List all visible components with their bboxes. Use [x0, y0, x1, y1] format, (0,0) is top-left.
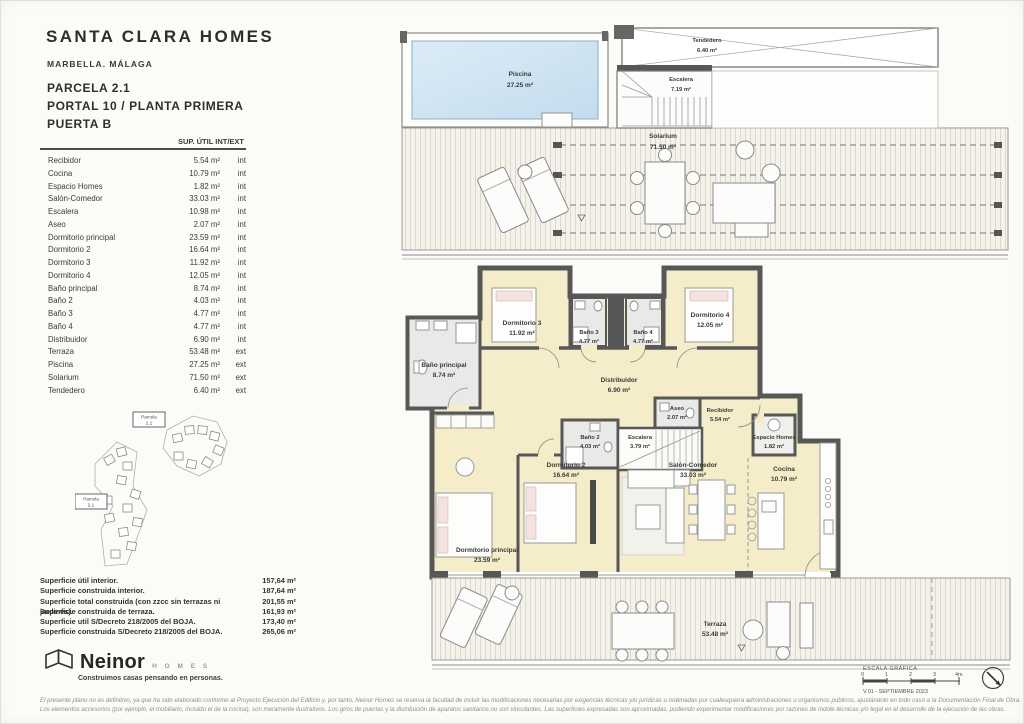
- roof-stair: [617, 65, 938, 128]
- summary-row: Superficie util S/Decreto 218/2005 del B…: [40, 617, 296, 627]
- svg-text:1: 1: [885, 672, 888, 678]
- svg-text:2: 2: [909, 672, 912, 678]
- room-type: int: [220, 155, 246, 168]
- svg-text:6.40 m²: 6.40 m²: [697, 47, 717, 54]
- svg-text:2.1: 2.1: [146, 421, 153, 426]
- svg-text:3.79 m²: 3.79 m²: [630, 443, 650, 450]
- room-label-piscina: Piscina: [509, 71, 532, 78]
- terraza-dining-set: [612, 601, 674, 661]
- svg-text:6.90 m²: 6.90 m²: [608, 387, 631, 394]
- room-name: Recibidor: [48, 155, 172, 168]
- site-label-left: Parcela 2.1: [75, 494, 107, 509]
- areas-table-header: SUP. ÚTIL INT/EXT: [40, 137, 244, 146]
- summary-row: Superficie útil interior.157,64 m²: [40, 576, 296, 586]
- area-row: Baño 24.03 m²int: [48, 295, 246, 308]
- room-label-solarium: Solarium: [649, 133, 677, 140]
- room-label-dormitorio3: Dormitorio 3: [503, 320, 542, 327]
- summary-row: Superficie construida de terraza.161,93 …: [40, 607, 296, 617]
- area-row: Recibidor5.54 m²int: [48, 155, 246, 168]
- tendedero-area: [614, 25, 938, 67]
- area-row: Solarium71.50 m²ext: [48, 372, 246, 385]
- room-label-espacio-homes: Espacio Homes: [752, 435, 795, 441]
- shaft-block: [614, 25, 634, 39]
- svg-text:2.1: 2.1: [88, 503, 95, 508]
- room-area: 5.54 m²: [172, 155, 220, 168]
- floor-plan-sheet: SANTA CLARA HOMES MARBELLA. MÁLAGA PARCE…: [0, 0, 1024, 724]
- svg-text:4.77 m²: 4.77 m²: [633, 338, 653, 345]
- area-row: Baño 44.77 m²int: [48, 321, 246, 334]
- room-label-dormitorio4: Dormitorio 4: [691, 312, 730, 319]
- svg-text:11.92 m²: 11.92 m²: [509, 330, 535, 337]
- plan-version: V.01 - SEPTIEMBRE 2023: [863, 689, 928, 695]
- area-row: Piscina27.25 m²ext: [48, 359, 246, 372]
- area-row: Baño principal8.74 m²int: [48, 283, 246, 296]
- main-plan: Dormitorio 3 11.92 m² Baño 3 4.77 m² Bañ…: [408, 268, 838, 582]
- area-row: Terraza53.48 m²ext: [48, 346, 246, 359]
- svg-text:4.77 m²: 4.77 m²: [579, 338, 599, 345]
- room-label-bano-principal: Baño principal: [421, 362, 466, 369]
- north-compass-icon: [983, 668, 1004, 689]
- area-row: Dormitorio 412.05 m²int: [48, 270, 246, 283]
- neinor-logo-icon: [44, 648, 74, 672]
- area-row: Salón-Comedor33.03 m²int: [48, 193, 246, 206]
- page-title: SANTA CLARA HOMES: [46, 27, 274, 47]
- svg-text:23.59 m²: 23.59 m²: [474, 557, 501, 564]
- svg-text:71.50 m²: 71.50 m²: [650, 144, 677, 151]
- room-label-aseo: Aseo: [670, 406, 685, 412]
- area-row: Dormitorio 311.92 m²int: [48, 257, 246, 270]
- disclaimer-line-2: Los elementos accesorios (por ejemplo, e…: [40, 706, 1022, 713]
- scale-title: ESCALA GRÁFICA: [863, 665, 917, 672]
- room-label-bano3: Baño 3: [579, 330, 599, 336]
- svg-text:53.48 m²: 53.48 m²: [702, 631, 729, 638]
- terraza: Terraza 53.48 m²: [432, 578, 1010, 669]
- side-table: [518, 165, 532, 179]
- svg-text:Parcela: Parcela: [141, 415, 157, 420]
- room-label-terraza: Terraza: [704, 621, 727, 628]
- pool-water: [412, 41, 598, 119]
- disclaimer-line-1: El presente plano no es definitivo, ya q…: [40, 697, 1022, 704]
- svg-text:10.79 m²: 10.79 m²: [771, 476, 798, 483]
- pool-steps: [542, 113, 572, 127]
- room-label-bano2: Baño 2: [580, 435, 599, 441]
- pool-area: [400, 31, 608, 127]
- areas-table: Recibidor5.54 m²int Cocina10.79 m²int Es…: [48, 155, 246, 397]
- area-row: Tendedero6.40 m²ext: [48, 385, 246, 398]
- site-label-top: Parcela 2.1: [133, 412, 165, 427]
- svg-text:0: 0: [861, 672, 864, 678]
- puerta-label: PUERTA B: [47, 117, 112, 131]
- room-label-bano4: Baño 4: [633, 330, 653, 336]
- room-label-dormitorio-principal: Dormitorio principal: [456, 547, 518, 554]
- summary-row: Superficie total construida (con zzcc si…: [40, 597, 296, 607]
- site-key-map: Parcela 2.1 Parcela 2.1: [75, 408, 240, 573]
- svg-text:5.54 m²: 5.54 m²: [710, 416, 730, 423]
- surface-summary: Superficie útil interior.157,64 m² Super…: [40, 576, 296, 638]
- summary-row: Superficie construida S/Decreto 218/2005…: [40, 627, 296, 637]
- scale-bar: ESCALA GRÁFICA 0 1 2 3 4m V.01 - SEPTIEM…: [861, 665, 963, 695]
- room-label-distribuidor: Distribuidor: [601, 377, 638, 384]
- floor-plan-drawing: Piscina 27.25 m² Tendedero 6.40 m² Escal…: [390, 15, 1020, 705]
- area-row: Distribuidor6.90 m²int: [48, 334, 246, 347]
- area-row: Cocina10.79 m²int: [48, 168, 246, 181]
- svg-text:16.64 m²: 16.64 m²: [553, 472, 580, 479]
- svg-text:2.07 m²: 2.07 m²: [667, 414, 687, 421]
- area-row: Baño 34.77 m²int: [48, 308, 246, 321]
- room-label-salon: Salón-Comedor: [669, 462, 718, 469]
- svg-text:4.03 m²: 4.03 m²: [580, 443, 600, 450]
- area-row: Dormitorio principal23.59 m²int: [48, 232, 246, 245]
- duct-shaft: [608, 296, 624, 348]
- room-label-escalera-main: Escalera: [628, 435, 653, 441]
- brand-sub: H O M E S: [152, 663, 210, 670]
- svg-text:27.25 m²: 27.25 m²: [507, 82, 534, 89]
- svg-text:8.74 m²: 8.74 m²: [433, 372, 456, 379]
- room-label-tendedero: Tendedero: [692, 38, 722, 44]
- summary-row: Superficie construida interior.187,64 m²: [40, 586, 296, 596]
- room-label-recibidor: Recibidor: [707, 408, 734, 414]
- room-label-cocina: Cocina: [773, 466, 795, 473]
- top-plan: Piscina 27.25 m² Tendedero 6.40 m² Escal…: [400, 25, 1008, 259]
- room-label-dormitorio2: Dormitorio 2: [547, 462, 586, 469]
- svg-text:12.05 m²: 12.05 m²: [697, 322, 724, 329]
- neinor-logo: Neinor H O M E S Construimos casas pensa…: [44, 648, 294, 682]
- svg-text:3: 3: [933, 672, 936, 678]
- svg-text:7.19 m²: 7.19 m²: [671, 86, 691, 93]
- parcela-label: PARCELA 2.1: [47, 81, 130, 95]
- portal-label: PORTAL 10 / PLANTA PRIMERA: [47, 99, 244, 113]
- room-label-escalera-top: Escalera: [669, 77, 694, 83]
- table-rule: [40, 148, 246, 150]
- area-row: Escalera10.98 m²int: [48, 206, 246, 219]
- svg-text:33.03 m²: 33.03 m²: [680, 472, 707, 479]
- svg-text:1.82 m²: 1.82 m²: [764, 443, 784, 450]
- area-row: Espacio Homes1.82 m²int: [48, 181, 246, 194]
- area-row: Aseo2.07 m²int: [48, 219, 246, 232]
- area-row: Dormitorio 216.64 m²int: [48, 244, 246, 257]
- brand-tagline: Construimos casas pensando en personas.: [78, 675, 294, 682]
- svg-text:4m: 4m: [955, 672, 963, 678]
- page-subtitle: MARBELLA. MÁLAGA: [47, 59, 153, 69]
- svg-text:Parcela: Parcela: [83, 497, 99, 502]
- brand-name: Neinor: [80, 652, 145, 672]
